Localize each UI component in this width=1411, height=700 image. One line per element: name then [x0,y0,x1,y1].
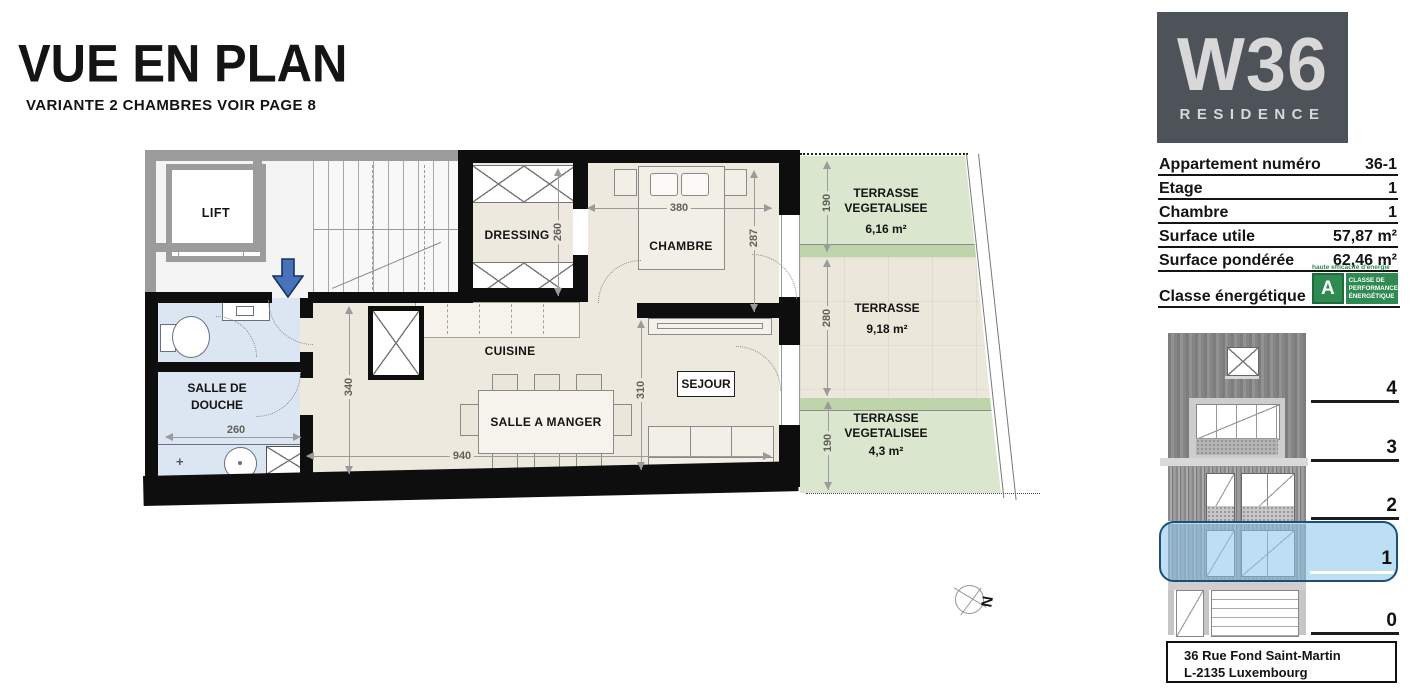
badge-line: PERFORMANCE [1349,285,1398,293]
energy-tagline: haute efficacité d'énergie [1312,264,1398,271]
kitchen-counter [415,302,580,338]
dimension-label: 940 [450,450,474,462]
attic-window [1227,347,1259,376]
dim-arrow [764,204,772,212]
dim-arrow [763,452,771,460]
kitchen-cabinet-line [511,304,512,334]
kitchen-cabinet-line [479,304,480,334]
balcony-windows [1196,404,1280,440]
wall [300,415,313,480]
lift-label: LIFT [202,206,230,220]
badge-line: ÉNERGÉTIQUE [1349,293,1398,301]
badge-line: CLASSE DE [1349,277,1398,285]
dim-arrow [824,482,832,490]
duct-shaft-icon [368,306,424,380]
wall [145,296,158,488]
stair-landing-line [313,229,462,230]
ground-beam [1168,581,1306,590]
sink-drain [238,461,242,465]
balcony-recess [1189,398,1285,458]
facade-post [1299,590,1306,635]
stair-dashed-line [372,165,373,295]
dimension-label: 287 [748,226,760,250]
room-label-douche: SALLE DE DOUCHE [187,380,246,414]
room-label-chambre: CHAMBRE [649,239,712,253]
dim-arrow [823,161,831,169]
nightstand-icon [614,169,637,196]
apartment-info-table: Appartement numéro 36-1 Etage 1 Chambre … [1158,152,1398,272]
facade-post [1204,590,1209,635]
address-box: 36 Rue Fond Saint-Martin L-2135 Luxembou… [1166,641,1397,683]
window [781,345,800,425]
balcony-balustrade [1196,438,1278,455]
floor-drain-icon: + [176,454,184,469]
terrace-name: TERRASSE [844,411,927,426]
room-label-sejour: SEJOUR [681,377,730,391]
wall [145,150,156,296]
logo-brand: W36 [1177,31,1328,101]
nightstand-icon [724,169,747,196]
wall [458,150,473,298]
table-row: Etage 1 [1158,176,1398,200]
terrace-label: TERRASSE VEGETALISEE 6,16 m² [844,186,927,237]
wall [253,161,262,252]
sofa-divider [690,427,691,457]
window-sill [1225,376,1259,379]
room-label-sejour-box: SEJOUR [677,371,735,397]
boundary-dotted-bottom [806,493,1040,494]
floor-slab [1160,458,1308,466]
energy-class-box: A CLASSE DE PERFORMANCE ÉNERGÉTIQUE [1312,273,1398,304]
dim-arrow [345,466,353,474]
room-label-douche-line2: DOUCHE [187,397,246,414]
wall [458,150,800,163]
dim-arrow [554,168,562,176]
row-value: 57,87 m² [1333,228,1397,246]
chair-icon [612,404,632,436]
terrace-label: TERRASSE VEGETALISEE 4,3 m² [844,411,927,459]
wall [637,303,780,318]
dimension-label: 260 [224,424,248,436]
row-value: 1 [1388,180,1397,198]
floor-line-1 [1310,571,1394,574]
table-row: Surface utile 57,87 m² [1158,224,1398,248]
dimension-label: 260 [552,220,564,244]
dimension-line [307,456,771,457]
row-label: Appartement numéro [1159,156,1321,174]
floor-line-3 [1311,459,1399,462]
floor-number-4: 4 [1377,378,1397,400]
wall [300,352,313,378]
dim-arrow [824,401,832,409]
boundary-dotted-top [800,153,968,155]
address-line1: 36 Rue Fond Saint-Martin [1184,647,1395,664]
dim-arrow [750,304,758,312]
dimension-label: 280 [821,306,833,330]
table-row: Chambre 1 [1158,200,1398,224]
dim-arrow [637,320,645,328]
logo-sub: RESIDENCE [1179,106,1325,123]
spandrel [1207,506,1234,522]
dim-arrow [293,433,301,441]
residence-logo: W36 RESIDENCE [1157,12,1348,143]
garage-door [1211,590,1299,637]
pillow-icon [681,173,709,196]
dim-arrow [823,388,831,396]
row-value: 36-1 [1365,156,1397,174]
dining-room-label: SALLE A MANGER [490,415,601,429]
terrace-name: VEGETALISEE [844,201,927,216]
dimension-label: 190 [822,431,834,455]
dim-arrow [165,433,173,441]
row-value: 1 [1388,204,1397,222]
cistern-button [236,306,254,316]
terrace-area: 4,3 m² [844,444,927,459]
brochure-page: VUE EN PLAN VARIANTE 2 CHAMBRES VOIR PAG… [0,0,1411,700]
wall [145,292,272,303]
terrace-name: TERRASSE [854,301,919,316]
floor-line-0 [1311,632,1399,635]
row-label: Chambre [1159,204,1228,222]
wall [573,163,588,209]
window [1206,473,1235,523]
entrance-arrow-icon [272,258,304,298]
kitchen-cabinet-line [447,304,448,334]
wall [779,163,800,215]
tv-console-icon [648,318,772,335]
dim-arrow [750,170,758,178]
facade-post [1168,590,1174,635]
floor-number-3: 3 [1377,437,1397,459]
wall [573,255,588,302]
terrace-area: 9,18 m² [854,322,919,337]
page-subtitle: VARIANTE 2 CHAMBRES VOIR PAGE 8 [26,97,316,114]
terrace-name: TERRASSE [844,186,927,201]
pillow-icon [650,173,678,196]
room-label-dressing: DRESSING [484,228,549,242]
dimension-label: 340 [343,375,355,399]
terrace-area: 6,16 m² [844,222,927,237]
floor-line-2 [1311,517,1399,520]
kitchen-cabinet-line [543,304,544,334]
row-label: Surface pondérée [1159,252,1294,270]
dining-table: SALLE A MANGER [478,390,614,454]
terrace-name: VEGETALISEE [844,426,927,441]
wall [158,362,301,372]
dim-arrow [306,452,314,460]
dim-arrow [345,306,353,314]
dimension-label: 190 [821,191,833,215]
tv-icon [657,323,763,329]
table-row: Appartement numéro 36-1 [1158,152,1398,176]
dimension-line [166,437,301,438]
room-label-cuisine: CUISINE [485,344,536,358]
energy-class-letter: A [1312,273,1344,304]
dimension-label: 380 [667,202,691,214]
dim-arrow [637,462,645,470]
row-label: Etage [1159,180,1203,198]
room-label-douche-line1: SALLE DE [187,380,246,397]
wall [145,243,257,252]
dimension-label: 310 [635,378,647,402]
energy-label: Classe énergétique [1159,288,1306,306]
floor-number-1: 1 [1372,548,1392,570]
floor-number-0: 0 [1377,610,1397,632]
sofa-divider [731,427,732,457]
energy-badge: haute efficacité d'énergie A CLASSE DE P… [1312,264,1398,304]
window [1241,473,1295,523]
dim-arrow [823,244,831,252]
wall [308,292,473,303]
floor-line-4 [1311,400,1399,403]
floor-number-2: 2 [1377,495,1397,517]
spandrel [1242,506,1294,522]
page-title: VUE EN PLAN [18,34,347,94]
dim-arrow [554,288,562,296]
dim-arrow [823,259,831,267]
entrance-door [1176,590,1204,637]
toilet-bowl-icon [172,316,210,358]
stair-dashed-line [424,165,425,295]
terrace-label: TERRASSE 9,18 m² [854,301,919,337]
chair-icon [460,404,480,436]
row-label: Surface utile [1159,228,1255,246]
dim-arrow [587,204,595,212]
wall [779,297,800,345]
wall [145,150,465,161]
address-line2: L-2135 Luxembourg [1184,664,1395,681]
